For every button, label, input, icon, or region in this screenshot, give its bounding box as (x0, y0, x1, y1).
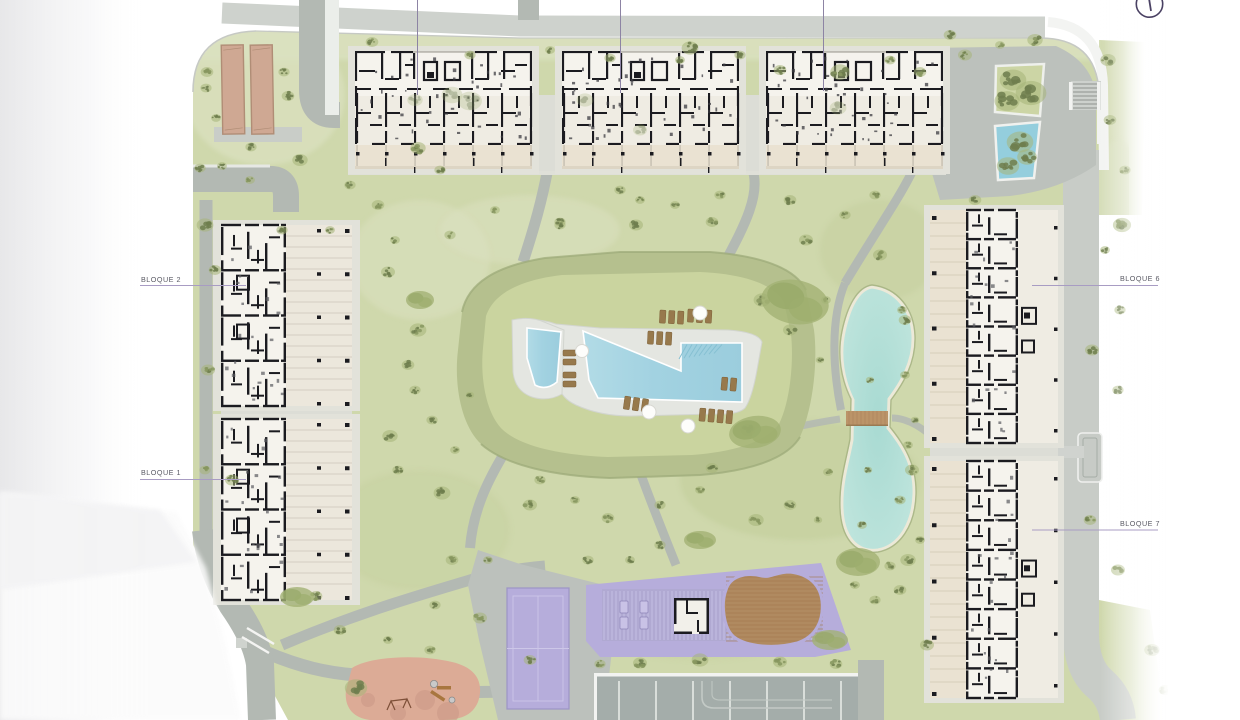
svg-text:BLOQUE 1: BLOQUE 1 (141, 468, 181, 477)
svg-text:BLOQUE 6: BLOQUE 6 (1120, 274, 1160, 283)
svg-text:BLOQUE 2: BLOQUE 2 (141, 275, 181, 284)
svg-text:BLOQUE 7: BLOQUE 7 (1120, 519, 1160, 528)
